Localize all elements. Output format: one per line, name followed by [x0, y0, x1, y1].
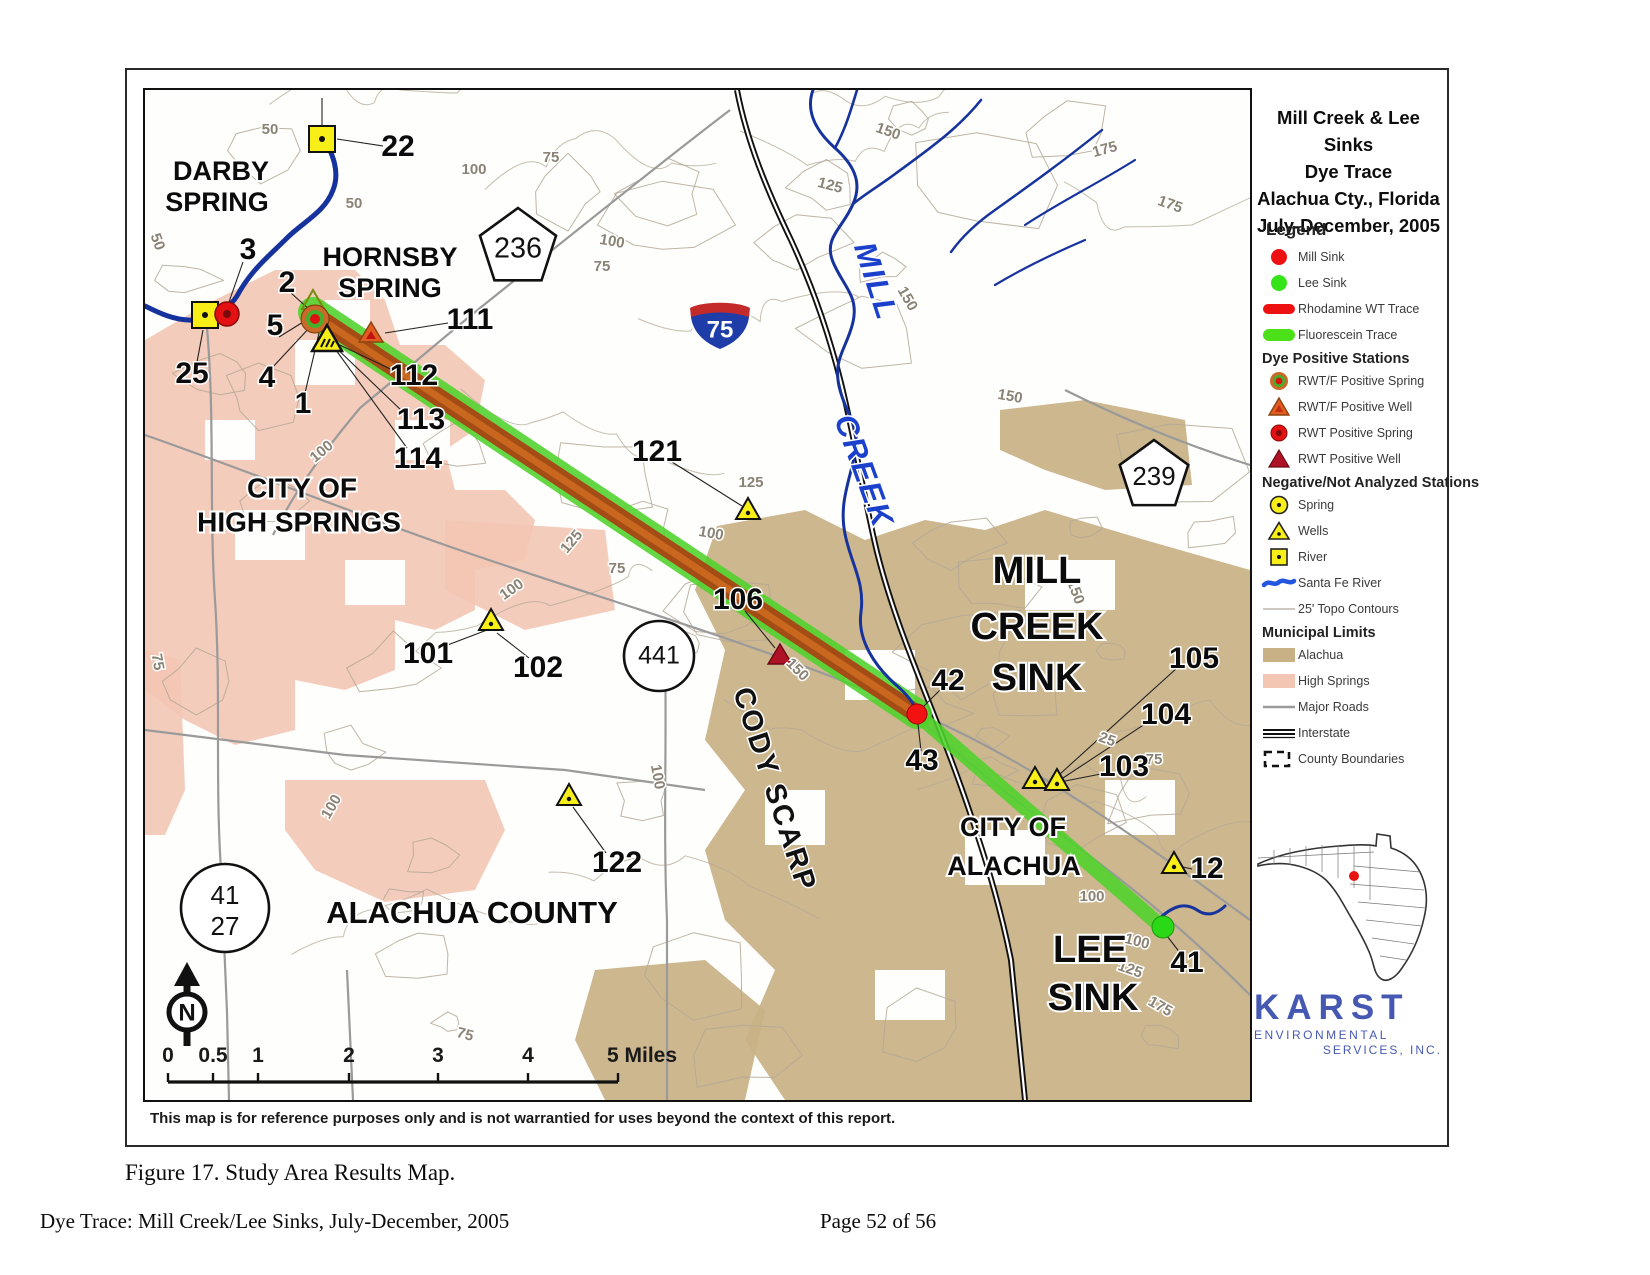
- high-springs-swatch-icon: [1261, 669, 1297, 693]
- legend-icon-cell: [1260, 597, 1298, 621]
- station-number-label: 104: [1141, 698, 1191, 731]
- legend-icon-cell: [1260, 545, 1298, 569]
- station-number-label: 105: [1169, 642, 1219, 675]
- legend-item: RWT Positive Well: [1260, 446, 1445, 472]
- legend-item-label: Major Roads: [1298, 700, 1369, 714]
- figure-caption: Figure 17. Study Area Results Map.: [125, 1160, 455, 1186]
- north-arrow: N: [169, 962, 205, 1046]
- legend-item: Wells: [1260, 518, 1445, 544]
- karst-logo-line1: ENVIRONMENTAL: [1254, 1028, 1442, 1042]
- map-title-line: Alachua Cty., Florida: [1252, 185, 1445, 212]
- rotated-place-label: MILL: [847, 238, 905, 325]
- station-number-label: 122: [592, 846, 642, 879]
- place-label: HORNSBY: [322, 242, 457, 272]
- station-number-label: 106: [713, 583, 763, 616]
- legend-section-header: Dye Positive Stations: [1262, 351, 1445, 367]
- neg-well-icon: [1261, 519, 1297, 543]
- contour-label: 75: [594, 258, 611, 275]
- legend-section-header: Municipal Limits: [1262, 625, 1445, 641]
- legend-icon-cell: [1260, 369, 1298, 393]
- rwtf-spring-icon: [1261, 369, 1297, 393]
- legend-item-label: Mill Sink: [1298, 250, 1345, 264]
- place-label: LEE: [1053, 929, 1127, 971]
- legend-item: Interstate: [1260, 720, 1445, 746]
- study-area-map: 2362397544141275010075501501251751751007…: [145, 90, 1250, 1100]
- neg-river-icon: [1261, 545, 1297, 569]
- contour-label: 150: [874, 119, 903, 144]
- svg-text:4: 4: [522, 1044, 534, 1067]
- station-number-label: 5: [267, 309, 284, 342]
- karst-logo: KARST ENVIRONMENTAL SERVICES, INC.: [1254, 990, 1442, 1057]
- contour-label: 75: [148, 652, 168, 671]
- rhodamine-trace-icon: [1261, 297, 1297, 321]
- rwt-spring-icon: [1261, 421, 1297, 445]
- legend-item-label: RWT Positive Well: [1298, 452, 1401, 466]
- place-label: CITY OF: [960, 812, 1066, 842]
- station-number-label: 121: [632, 435, 682, 468]
- legend-items: Mill SinkLee SinkRhodamine WT TraceFluor…: [1260, 244, 1445, 772]
- place-label: SPRING: [338, 273, 442, 303]
- legend-item-label: Fluorescein Trace: [1298, 328, 1397, 342]
- svg-text:41: 41: [211, 880, 240, 910]
- map-title: Mill Creek & Lee Sinks Dye Trace Alachua…: [1252, 104, 1445, 239]
- legend-item-label: 25' Topo Contours: [1298, 602, 1399, 616]
- rwt-well-icon: [1261, 447, 1297, 471]
- page-footer-left: Dye Trace: Mill Creek/Lee Sinks, July-De…: [40, 1209, 509, 1234]
- legend-item-label: Rhodamine WT Trace: [1298, 302, 1419, 316]
- lee-sink-icon: [1261, 271, 1297, 295]
- contour-label: 100: [461, 161, 486, 178]
- legend-item: River: [1260, 544, 1445, 570]
- contour-label: 125: [738, 474, 763, 491]
- legend-icon-cell: [1260, 297, 1298, 321]
- legend-item: High Springs: [1260, 668, 1445, 694]
- svg-text:75: 75: [707, 316, 734, 343]
- svg-text:27: 27: [211, 911, 240, 941]
- legend-item: Mill Sink: [1260, 244, 1445, 270]
- legend-item-label: Alachua: [1298, 648, 1343, 662]
- legend: Legend Mill SinkLee SinkRhodamine WT Tra…: [1260, 220, 1445, 772]
- legend-item-label: Wells: [1298, 524, 1328, 538]
- place-label: MILL: [993, 550, 1082, 592]
- station-number-label: 4: [259, 361, 276, 394]
- rotated-place-label: CREEK: [827, 410, 901, 534]
- place-label: CREEK: [970, 606, 1104, 648]
- place-label: CITY OF: [247, 472, 357, 503]
- contour-label: 100: [598, 231, 626, 252]
- legend-icon-cell: [1260, 721, 1298, 745]
- contour-label: 175: [1156, 192, 1185, 217]
- station-number-label: 43: [905, 744, 938, 777]
- contour-label: 75: [455, 1024, 476, 1045]
- rwtf-well-icon: [1261, 395, 1297, 419]
- florida-inset-map: [1254, 826, 1442, 991]
- contour-label: 100: [697, 523, 725, 544]
- legend-panel: Mill Creek & Lee Sinks Dye Trace Alachua…: [1252, 88, 1445, 1098]
- station-number-label: 12: [1190, 852, 1223, 885]
- legend-icon-cell: [1260, 421, 1298, 445]
- svg-text:0.5: 0.5: [198, 1044, 228, 1067]
- contour-label: 175: [1091, 138, 1120, 161]
- legend-icon-cell: [1260, 643, 1298, 667]
- contour-label: 100: [647, 763, 668, 791]
- contour-label: 125: [816, 174, 845, 197]
- legend-icon-cell: [1260, 245, 1298, 269]
- legend-icon-cell: [1260, 747, 1298, 771]
- station-number-label: 103: [1099, 750, 1149, 783]
- place-label: SINK: [1048, 977, 1139, 1019]
- station-number-label: 2: [279, 266, 296, 299]
- legend-item-label: County Boundaries: [1298, 752, 1404, 766]
- contour-label: 75: [609, 560, 626, 577]
- legend-item-label: Santa Fe River: [1298, 576, 1381, 590]
- contour-label: 75: [543, 149, 560, 166]
- station-number-label: 41: [1170, 946, 1203, 979]
- map-panel: 2362397544141275010075501501251751751007…: [143, 88, 1252, 1102]
- legend-item-label: RWT/F Positive Well: [1298, 400, 1412, 414]
- station-number-label: 113: [397, 403, 445, 436]
- alachua-swatch-icon: [1261, 643, 1297, 667]
- place-label: ALACHUA COUNTY: [326, 895, 618, 930]
- station-number-label: 1: [295, 387, 312, 420]
- contour-label: 100: [1079, 888, 1104, 905]
- legend-item: Alachua: [1260, 642, 1445, 668]
- station-number-label: 114: [394, 442, 443, 475]
- svg-text:239: 239: [1132, 463, 1175, 491]
- legend-item: Major Roads: [1260, 694, 1445, 720]
- svg-text:236: 236: [494, 233, 542, 265]
- contour-label: 50: [262, 121, 279, 138]
- legend-item: Rhodamine WT Trace: [1260, 296, 1445, 322]
- page-footer-right: Page 52 of 56: [820, 1209, 936, 1234]
- legend-item-label: River: [1298, 550, 1327, 564]
- legend-item-label: Lee Sink: [1298, 276, 1347, 290]
- legend-icon-cell: [1260, 571, 1298, 595]
- station-number-label: 101: [403, 637, 453, 670]
- legend-section-header: Negative/Not Analyzed Stations: [1262, 475, 1445, 491]
- legend-item: RWT Positive Spring: [1260, 420, 1445, 446]
- karst-logo-name: KARST: [1254, 990, 1442, 1026]
- legend-item-label: Spring: [1298, 498, 1334, 512]
- place-label: SPRING: [165, 187, 269, 217]
- legend-icon-cell: [1260, 323, 1298, 347]
- contour-icon: [1261, 597, 1297, 621]
- legend-icon-cell: [1260, 695, 1298, 719]
- station-number-label: 42: [931, 664, 964, 697]
- station-number-label: 102: [513, 651, 563, 684]
- svg-text:N: N: [178, 999, 195, 1026]
- legend-item: County Boundaries: [1260, 746, 1445, 772]
- map-title-line: Dye Trace: [1252, 158, 1445, 185]
- contour-label: 150: [996, 386, 1024, 407]
- svg-text:5 Miles: 5 Miles: [607, 1044, 677, 1067]
- legend-item: RWT/F Positive Spring: [1260, 368, 1445, 394]
- legend-item: Santa Fe River: [1260, 570, 1445, 596]
- karst-logo-line2: SERVICES, INC.: [1254, 1043, 1442, 1057]
- place-label: DARBY: [173, 156, 269, 186]
- legend-item: Lee Sink: [1260, 270, 1445, 296]
- place-label: HIGH SPRINGS: [197, 506, 401, 537]
- place-label: SINK: [992, 657, 1083, 699]
- legend-icon-cell: [1260, 519, 1298, 543]
- station-number-label: 25: [175, 357, 208, 390]
- legend-item-label: High Springs: [1298, 674, 1370, 688]
- legend-item: 25' Topo Contours: [1260, 596, 1445, 622]
- legend-icon-cell: [1260, 669, 1298, 693]
- legend-icon-cell: [1260, 271, 1298, 295]
- station-number-label: 3: [240, 233, 257, 266]
- legend-item: Fluorescein Trace: [1260, 322, 1445, 348]
- neg-spring-icon: [1261, 493, 1297, 517]
- mill-sink-icon: [1261, 245, 1297, 269]
- legend-icon-cell: [1260, 395, 1298, 419]
- contour-label: 50: [346, 195, 363, 212]
- major-road-icon: [1261, 695, 1297, 719]
- legend-item-label: Interstate: [1298, 726, 1350, 740]
- place-label: ALACHUA: [947, 851, 1080, 881]
- map-disclaimer: This map is for reference purposes only …: [150, 1110, 1150, 1127]
- legend-item-label: RWT/F Positive Spring: [1298, 374, 1424, 388]
- map-title-line: Mill Creek & Lee Sinks: [1252, 104, 1445, 158]
- svg-text:1: 1: [252, 1044, 264, 1067]
- svg-text:0: 0: [162, 1044, 174, 1067]
- svg-text:3: 3: [432, 1044, 444, 1067]
- legend-header: Legend: [1266, 220, 1445, 240]
- station-number-label: 112: [390, 359, 438, 392]
- legend-icon-cell: [1260, 493, 1298, 517]
- station-number-label: 111: [447, 303, 494, 336]
- santa-fe-icon: [1261, 571, 1297, 595]
- contour-label: 50: [147, 231, 169, 252]
- legend-item: RWT/F Positive Well: [1260, 394, 1445, 420]
- station-number-label: 22: [381, 130, 414, 163]
- legend-icon-cell: [1260, 447, 1298, 471]
- svg-text:2: 2: [343, 1044, 355, 1067]
- legend-item: Spring: [1260, 492, 1445, 518]
- svg-text:441: 441: [638, 642, 680, 670]
- county-boundary-icon: [1261, 747, 1297, 771]
- legend-item-label: RWT Positive Spring: [1298, 426, 1413, 440]
- interstate-icon: [1261, 721, 1297, 745]
- fluorescein-trace-icon: [1261, 323, 1297, 347]
